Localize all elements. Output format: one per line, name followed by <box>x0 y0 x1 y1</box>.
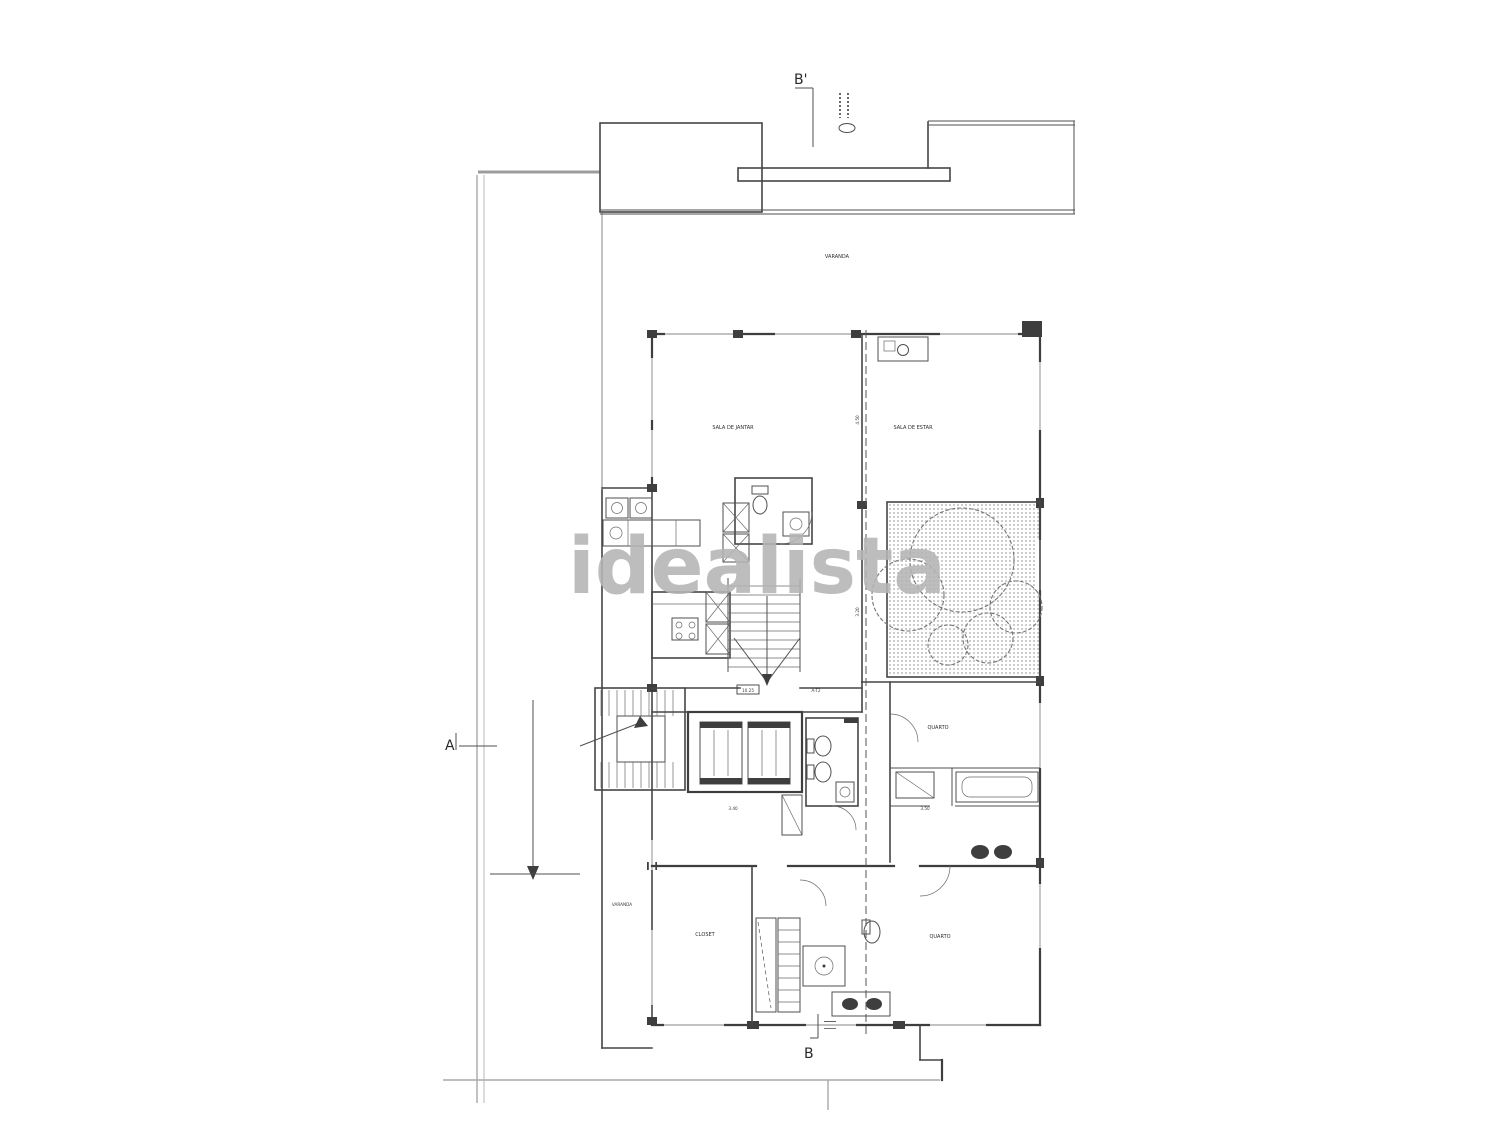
common-staircase <box>580 688 685 790</box>
tree-canopy <box>928 625 968 665</box>
sink <box>866 998 882 1010</box>
section-dim-a: 4.50 <box>855 415 860 425</box>
bidet <box>815 762 831 782</box>
fireplace <box>878 337 928 361</box>
sink <box>840 787 850 797</box>
windows <box>649 331 1044 1029</box>
stair-arrowhead <box>634 716 648 728</box>
elevator-car-left <box>700 722 742 784</box>
door-swing-arc <box>920 866 950 896</box>
section-marker-a: A <box>445 738 455 754</box>
label-terrace-side: VARANDA <box>612 902 632 907</box>
bathtub <box>956 772 1038 802</box>
tree-canopy <box>990 581 1042 633</box>
sink <box>971 845 989 859</box>
section-marker-top-group: B' <box>794 72 855 147</box>
section-marker-b-bottom: B <box>804 1046 814 1062</box>
door-swing-arc <box>800 880 826 906</box>
sink <box>842 998 858 1010</box>
label-lobby-area: 10.25 <box>742 688 754 693</box>
tree-canopy <box>963 613 1013 663</box>
toilet <box>753 496 767 514</box>
wardrobe-shelves <box>778 918 800 1012</box>
floorplan-page: A B' VARANDA <box>0 0 1500 1125</box>
label-closet-dim: 3.50 <box>920 806 930 811</box>
label-room-left-dim: 3.40 <box>728 806 738 811</box>
label-closet-bottom: CLOSET <box>695 932 715 938</box>
wardrobe <box>756 918 776 1012</box>
section-marker-bottom-group: B <box>804 1014 818 1062</box>
door-swing-arc <box>890 714 918 742</box>
door-swing-arc <box>832 806 856 830</box>
elevator-car-right <box>748 722 790 784</box>
appliance-washer <box>606 498 628 518</box>
annotation-ellipse <box>839 124 855 133</box>
site-boundary-lines <box>443 172 940 1110</box>
sink <box>994 845 1012 859</box>
section-marker-b-top: B' <box>794 72 807 88</box>
hall-annotations: 10.25 A-T2 <box>737 685 856 835</box>
terrace-structure <box>600 121 1075 214</box>
bathroom-core <box>806 718 858 806</box>
bottom-right-step <box>920 1025 942 1080</box>
ramp-arrowhead <box>527 866 539 880</box>
label-living-room: SALA DE ESTAR <box>893 425 933 431</box>
label-bedroom-right: QUARTO <box>927 725 948 731</box>
label-terrace-top: VARANDA <box>825 254 850 260</box>
main-walls <box>602 321 1044 1048</box>
label-bedroom-bottom: QUARTO <box>929 934 950 940</box>
appliance-dryer <box>630 498 652 518</box>
label-dining-room: SALA DE JANTAR <box>712 425 754 431</box>
idealista-watermark: idealista <box>568 522 946 612</box>
stair-direction-arrow <box>762 674 772 686</box>
toilet <box>815 736 831 756</box>
living-dining-rooms: SALA DE JANTAR SALA DE ESTAR <box>712 334 933 505</box>
